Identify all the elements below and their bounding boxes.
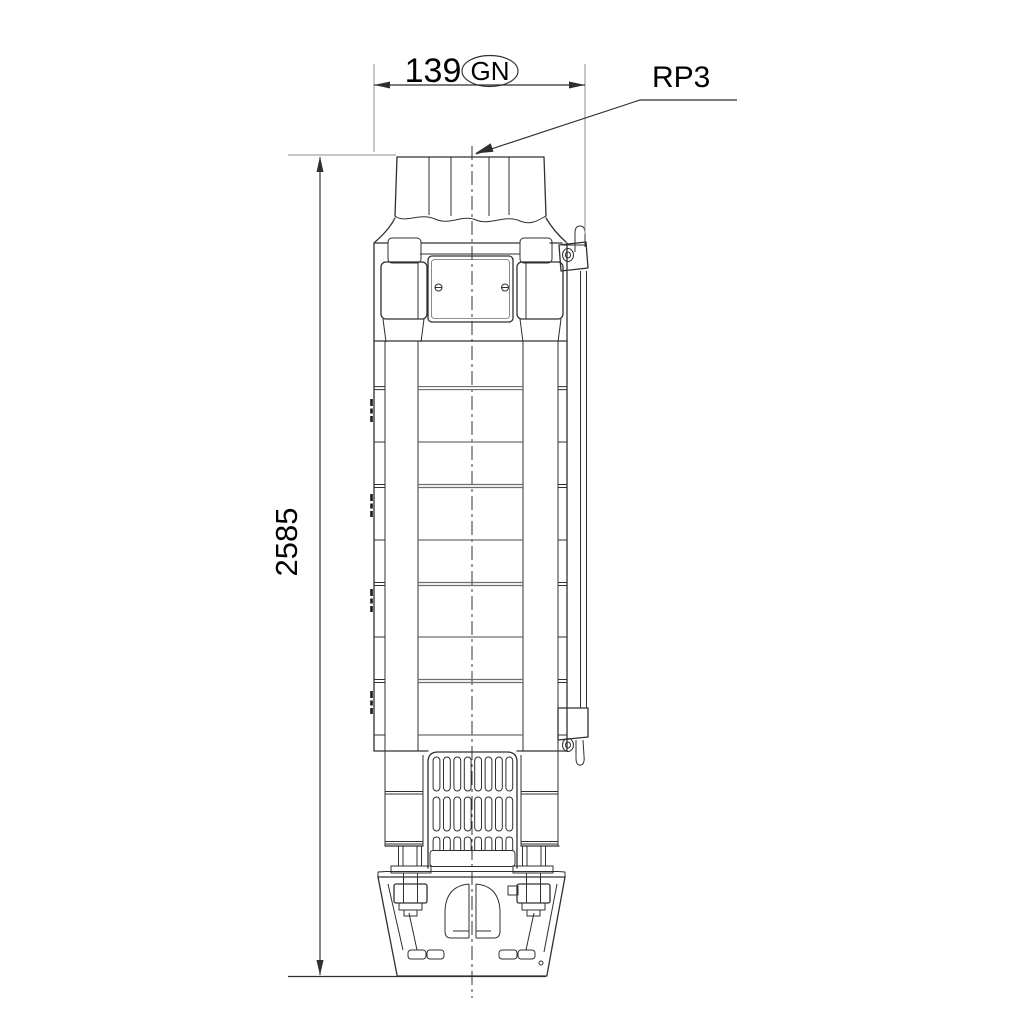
bracket-window-left [445, 884, 469, 938]
arrowhead-up [317, 157, 324, 173]
length-dimension: 2585 [269, 155, 546, 977]
nameplate [428, 256, 513, 322]
pump-outline [372, 157, 589, 976]
cable-clamp-right [517, 238, 563, 342]
strainer-band [430, 851, 515, 867]
top-clip-bolt [563, 249, 574, 262]
drawing-canvas: 139 GN 2585 RP3 [0, 0, 1024, 1024]
hex-nut-right [508, 884, 550, 916]
arrowhead-down [317, 960, 324, 976]
gn-balloon-label: GN [471, 56, 510, 86]
top-clip-hook [575, 226, 585, 252]
length-dim-value: 2585 [269, 508, 304, 577]
chamber-stack [374, 341, 567, 846]
width-dimension: 139 GN [374, 52, 585, 234]
motor-bracket [378, 872, 565, 977]
width-dim-value: 139 [405, 52, 462, 90]
suction-strainer [428, 752, 517, 868]
arrowhead-left [374, 82, 390, 89]
bottom-clip-bolt [563, 739, 574, 752]
arrowhead-right [569, 82, 585, 89]
hex-nut-left [394, 884, 427, 916]
connection-label: RP3 [652, 61, 710, 94]
bracket-window-right [476, 884, 500, 938]
leader-arrowhead [475, 143, 494, 153]
bracket-hole [539, 961, 543, 965]
port-leader: RP3 [475, 61, 737, 154]
bottom-clip-hook [576, 740, 584, 765]
discharge-connection [395, 157, 546, 223]
pump-dimensional-drawing: 139 GN 2585 RP3 [0, 0, 1024, 1024]
discharge-cone [374, 218, 587, 254]
